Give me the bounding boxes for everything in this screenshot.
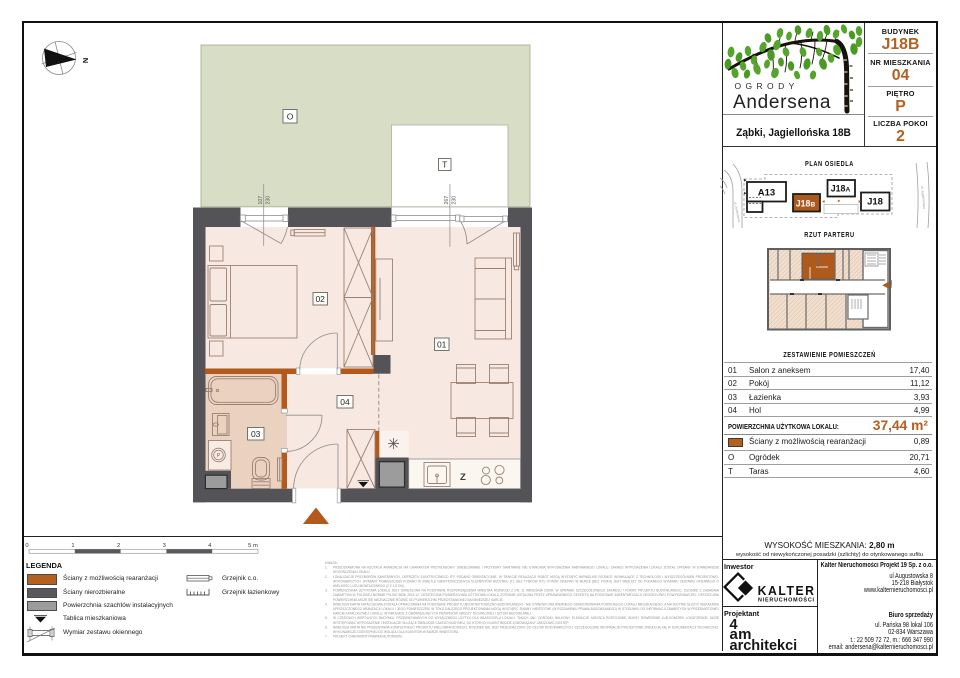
- svg-text:A13: A13: [758, 188, 775, 199]
- svg-text:O: O: [287, 112, 294, 122]
- svg-text:J18B: J18B: [890, 280, 892, 288]
- svg-text:NIERUCHOMOŚCI: NIERUCHOMOŚCI: [758, 597, 815, 604]
- svg-text:107: 107: [258, 196, 264, 205]
- svg-text:4: 4: [208, 543, 212, 549]
- svg-text:1: 1: [71, 543, 74, 549]
- svg-text:04: 04: [340, 397, 350, 407]
- svg-text:KALTER: KALTER: [758, 584, 816, 598]
- svg-text:2: 2: [117, 543, 120, 549]
- svg-text:230: 230: [265, 196, 271, 205]
- svg-text:0: 0: [25, 543, 28, 549]
- svg-text:3: 3: [163, 543, 166, 549]
- svg-text:02: 02: [315, 294, 325, 304]
- svg-text:J18: J18: [867, 197, 883, 208]
- svg-text:Z: Z: [460, 472, 466, 483]
- svg-text:267: 267: [444, 196, 450, 205]
- svg-text:ul. Jagiellońska: ul. Jagiellońska: [920, 186, 926, 210]
- svg-text:01: 01: [437, 340, 447, 350]
- svg-text:5 m: 5 m: [248, 543, 258, 549]
- svg-text:N: N: [81, 58, 90, 63]
- svg-text:T: T: [442, 160, 447, 170]
- svg-text:ul. Andersena: ul. Andersena: [733, 201, 741, 222]
- svg-text:03: 03: [251, 429, 261, 439]
- svg-text:230: 230: [452, 196, 458, 205]
